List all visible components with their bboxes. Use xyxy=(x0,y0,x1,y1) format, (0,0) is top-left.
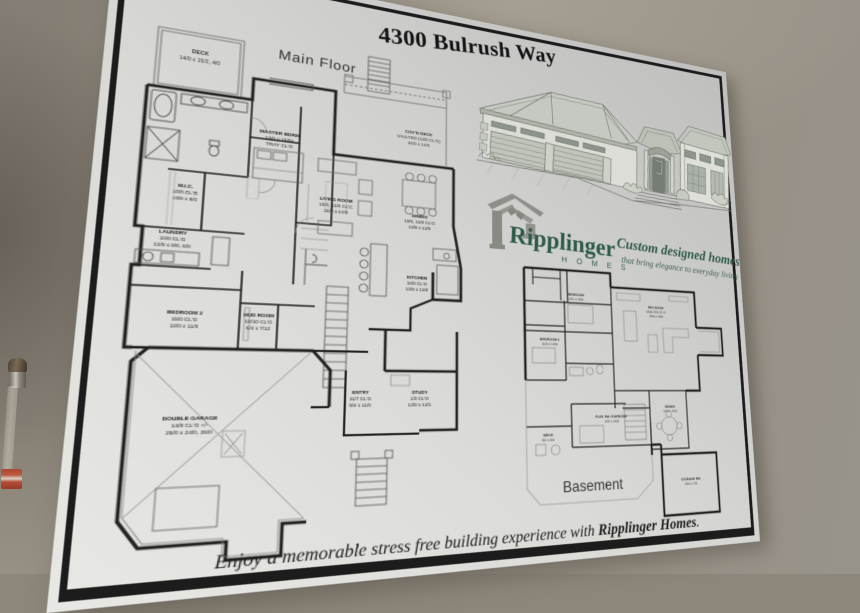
svg-text:ENTRY: ENTRY xyxy=(352,390,369,395)
svg-text:MECH: MECH xyxy=(543,433,553,437)
svg-text:13/0 x 13/0: 13/0 x 13/0 xyxy=(405,287,428,293)
svg-text:BEDROOM 2: BEDROOM 2 xyxy=(167,310,203,317)
svg-text:10/6 x 9/0: 10/6 x 9/0 xyxy=(172,195,197,203)
svg-text:14/9 CL'G +/-: 14/9 CL'G +/- xyxy=(171,423,209,430)
svg-text:9/4 x 11/0: 9/4 x 11/0 xyxy=(349,403,371,409)
svg-text:DINING: DINING xyxy=(665,405,676,409)
svg-text:10/1 x 10/0: 10/1 x 10/0 xyxy=(568,297,584,302)
svg-text:FLEX RM / EXERCISE: FLEX RM / EXERCISE xyxy=(595,414,627,418)
svg-text:20/4 x 7/6: 20/4 x 7/6 xyxy=(685,481,698,486)
svg-text:12/0 x 10/0: 12/0 x 10/0 xyxy=(604,419,620,423)
svg-text:20/6 x 15/6: 20/6 x 15/6 xyxy=(649,314,663,318)
svg-text:DOUBLE GARAGE: DOUBLE GARAGE xyxy=(162,416,218,423)
svg-text:12/0 x 11/0: 12/0 x 11/0 xyxy=(169,323,198,330)
svg-text:DECK: DECK xyxy=(192,50,210,58)
svg-text:28/0 x 24/0, 26/0: 28/0 x 24/0, 26/0 xyxy=(165,430,212,437)
svg-text:9/2 x 6/0: 9/2 x 6/0 xyxy=(542,438,555,443)
svg-text:11/7 CL'G: 11/7 CL'G xyxy=(349,397,371,403)
svg-text:MUD ROOM: MUD ROOM xyxy=(243,313,275,320)
svg-text:13/0 x 8/0, 6/0: 13/0 x 8/0, 6/0 xyxy=(153,242,190,250)
svg-text:11/0 x 10/6: 11/0 x 10/6 xyxy=(542,342,558,346)
svg-text:STUDY: STUDY xyxy=(412,390,428,395)
svg-text:1/0 CL'G: 1/0 CL'G xyxy=(410,397,428,402)
svg-text:8/4 x 7/12: 8/4 x 7/12 xyxy=(246,326,270,332)
svg-text:15/0 CL'G: 15/0 CL'G xyxy=(171,317,198,324)
svg-text:14/0 x 15/2, 4/0: 14/0 x 15/2, 4/0 xyxy=(179,56,221,68)
svg-text:13/0 x 13/1: 13/0 x 13/1 xyxy=(408,403,431,408)
svg-text:12/0 x 11/0: 12/0 x 11/0 xyxy=(663,409,677,413)
svg-text:13/9 x 13/0: 13/9 x 13/0 xyxy=(408,225,430,232)
